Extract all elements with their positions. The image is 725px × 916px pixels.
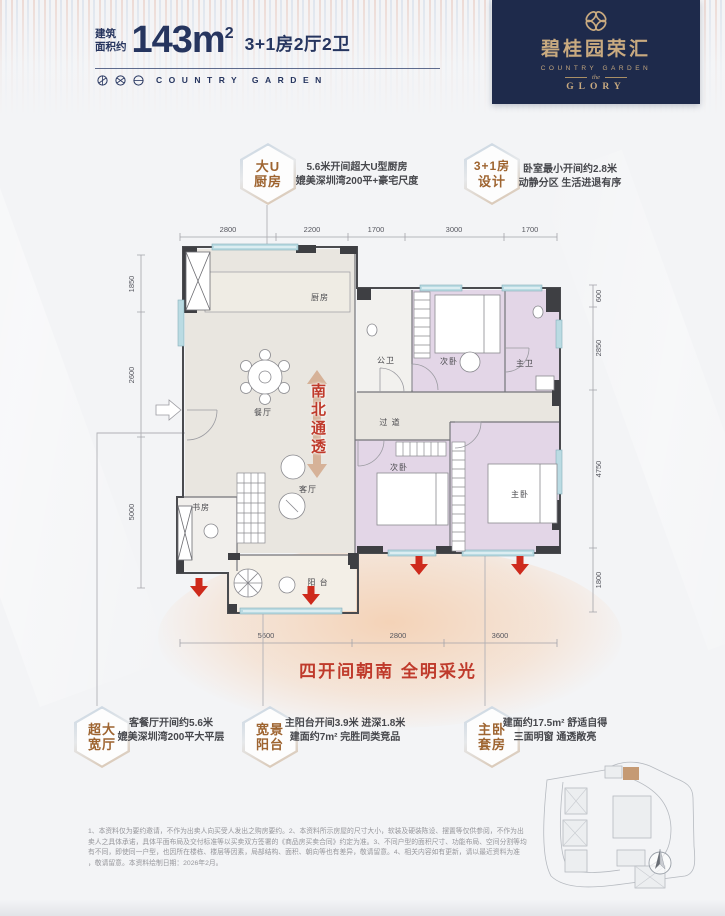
dim-right-2: 2850 xyxy=(594,340,603,357)
entry-arrow-icon xyxy=(156,400,181,420)
logo-dash-right xyxy=(605,77,627,78)
badge-desc-master-suite: 建面约17.5m² 舒适自得 三面明窗 通透敞亮 xyxy=(465,717,645,744)
dim-top-3: 1700 xyxy=(368,225,385,234)
badge-desc-line2: 媲美深圳湾200平+豪宅尺度 xyxy=(267,175,447,189)
label-bath-public: 公卫 xyxy=(377,356,395,365)
badge-desc-wide-balcony: 主阳台开间3.9米 进深1.8米 建面约7m² 完胜同类竞品 xyxy=(255,717,435,744)
area-number: 143m xyxy=(132,19,225,61)
logo-the: the xyxy=(592,74,600,81)
brand-logo-box: 碧桂园荣汇 COUNTRY GARDEN the GLORY xyxy=(492,0,700,104)
disclaimer: 1、本资料仅为要约邀请，不作为出卖人向买受人发出之购房要约。2、本资料所示房屋的… xyxy=(88,827,550,869)
label-bath-master: 主卫 xyxy=(516,358,534,368)
badge-desc-line1: 客餐厅开间约5.6米 xyxy=(81,717,261,731)
label-dining: 餐厅 xyxy=(254,408,272,417)
layout-spec: 3+1房2厅2卫 xyxy=(245,31,351,56)
disclaimer-line1: 1、本资料仅为要约邀请，不作为出卖人向买受人发出之购房要约。2、本资料所示房屋的… xyxy=(88,827,550,838)
site-plan-map xyxy=(544,762,695,888)
dim-left-3: 5000 xyxy=(127,504,136,521)
highlighted-unit xyxy=(623,767,639,780)
area-value: 143m2 xyxy=(132,24,233,57)
dim-bottom-1: 5600 xyxy=(258,631,275,640)
cert-icon-3 xyxy=(133,75,144,86)
clover-logo-icon xyxy=(582,9,610,33)
label-kitchen: 厨房 xyxy=(311,292,329,302)
dim-left-1: 1850 xyxy=(127,276,136,293)
label-living: 客厅 xyxy=(299,484,317,494)
cert-icon-1 xyxy=(97,75,108,86)
badge-desc-extra-wide-hall: 客餐厅开间约5.6米 媲美深圳湾200平大平层 xyxy=(81,717,261,744)
label-hallway: 过 道 xyxy=(379,417,400,427)
area-superscript: 2 xyxy=(225,25,233,42)
brand-row: COUNTRY GARDEN xyxy=(97,73,328,87)
title-divider xyxy=(95,68,440,69)
brand-en-text: COUNTRY GARDEN xyxy=(156,75,328,85)
label-balcony: 阳 台 xyxy=(307,577,328,587)
badge-desc-line2: 建面约7m² 完胜同类竞品 xyxy=(255,731,435,745)
area-prefix-line1: 建筑 xyxy=(95,28,127,41)
cert-icon-2 xyxy=(115,75,126,86)
dim-top-1: 2800 xyxy=(220,225,237,234)
logo-cn: 碧桂园荣汇 xyxy=(541,34,651,61)
badge-desc-3plus1-design: 卧室最小开间约2.8米 动静分区 生活进退有序 xyxy=(480,163,660,190)
area-prefix: 建筑 面积约 xyxy=(95,28,127,53)
label-bedroom-master: 主卧 xyxy=(511,489,529,499)
dim-bottom-2: 2800 xyxy=(390,631,407,640)
compass-icon xyxy=(649,849,671,874)
brand-icons xyxy=(97,75,144,86)
badge-desc-line1: 5.6米开间超大U型厨房 xyxy=(267,161,447,175)
label-bedroom2b: 次卧 xyxy=(390,462,408,472)
logo-en: COUNTRY GARDEN xyxy=(541,65,652,72)
disclaimer-line4: ，敬请留意。本资料绘制日期：2026年2月。 xyxy=(88,859,550,870)
dim-top-5: 1700 xyxy=(522,225,539,234)
dim-bottom-3: 3600 xyxy=(492,631,509,640)
area-prefix-line2: 面积约 xyxy=(95,41,127,54)
label-study: 书房 xyxy=(192,502,210,512)
logo-glory: GLORY xyxy=(566,82,626,92)
dim-top-2: 2200 xyxy=(304,225,321,234)
badge-desc-line1: 主阳台开间3.9米 进深1.8米 xyxy=(255,717,435,731)
dim-left-2: 2600 xyxy=(127,367,136,384)
poster-page: 2800 2200 1700 3000 1700 5600 2800 3600 … xyxy=(0,0,725,916)
dim-right-1: 600 xyxy=(594,290,603,303)
dim-right-4: 1800 xyxy=(594,572,603,589)
badge-desc-line1: 卧室最小开间约2.8米 xyxy=(480,163,660,177)
disclaimer-line2: 卖人之具体承诺，具体平面布局及交付标准等以买卖双方签署的《商品房买卖合同》约定为… xyxy=(88,838,550,849)
badge-desc-line2: 动静分区 生活进退有序 xyxy=(480,177,660,191)
dim-top-4: 3000 xyxy=(446,225,463,234)
page-bottom-edge xyxy=(0,900,725,916)
title-block: 建筑 面积约 143m2 3+1房2厅2卫 xyxy=(95,24,350,57)
badge-desc-line2: 三面明窗 通透敞亮 xyxy=(465,731,645,745)
badge-desc-big-u-kitchen: 5.6米开间超大U型厨房 媲美深圳湾200平+豪宅尺度 xyxy=(267,161,447,188)
disclaimer-line3: 有不同，即使同一户型，也因所在楼栋、楼层等因素，局部结构、面积、朝向等也有差异，… xyxy=(88,848,550,859)
badge-desc-line2: 媲美深圳湾200平大平层 xyxy=(81,731,261,745)
south-facing-highlight: 四开间朝南 全明采光 xyxy=(238,657,538,682)
badge-desc-line1: 建面约17.5m² 舒适自得 xyxy=(465,717,645,731)
logo-the-row: the xyxy=(565,74,627,81)
north-south-label: 南北通透 xyxy=(307,383,328,457)
label-bedroom2a: 次卧 xyxy=(440,356,458,366)
dim-right-3: 4750 xyxy=(594,461,603,478)
logo-dash-left xyxy=(565,77,587,78)
floor-plan: 2800 2200 1700 3000 1700 5600 2800 3600 … xyxy=(0,0,725,916)
